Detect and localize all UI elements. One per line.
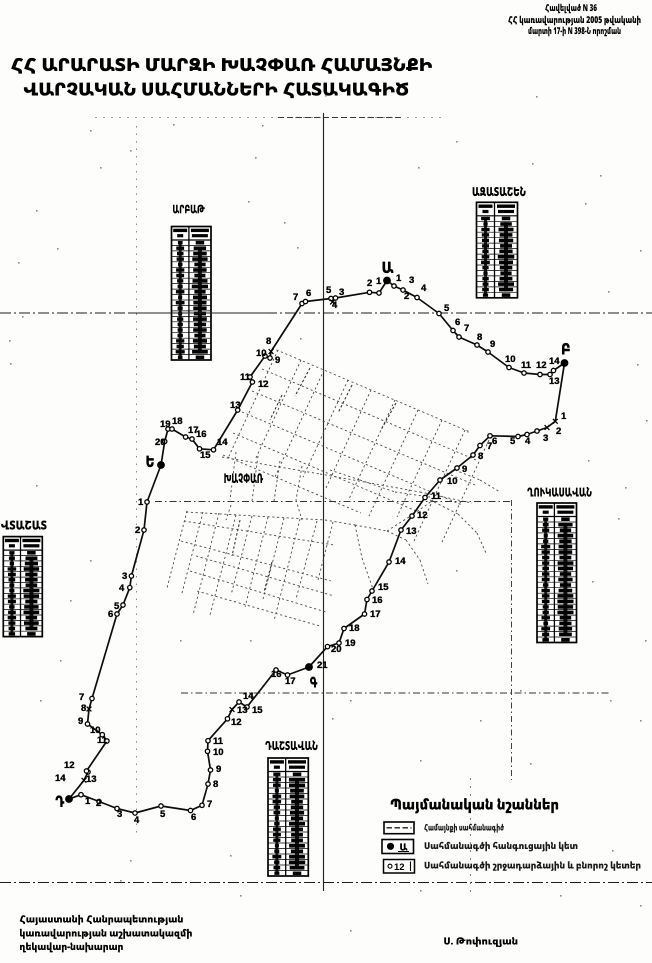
svg-text:7: 7 [487, 441, 492, 452]
svg-text:7: 7 [207, 799, 212, 810]
svg-text:4: 4 [119, 583, 125, 594]
svg-text:19: 19 [345, 638, 356, 649]
svg-text:13: 13 [549, 376, 560, 387]
svg-text:13: 13 [237, 705, 248, 716]
svg-text:11: 11 [240, 372, 251, 383]
svg-text:9: 9 [490, 339, 495, 350]
svg-text:10: 10 [90, 725, 101, 736]
svg-text:20: 20 [155, 437, 166, 448]
svg-text:14: 14 [549, 356, 560, 367]
svg-text:4: 4 [525, 436, 531, 447]
svg-text:11: 11 [431, 491, 442, 502]
svg-text:13: 13 [230, 400, 241, 411]
svg-text:10: 10 [256, 348, 267, 359]
svg-text:4: 4 [134, 815, 140, 826]
svg-text:13: 13 [86, 774, 97, 785]
svg-text:12: 12 [258, 379, 269, 390]
svg-text:4: 4 [332, 300, 338, 311]
svg-text:15: 15 [378, 582, 389, 593]
svg-text:4: 4 [421, 283, 427, 294]
svg-text:1: 1 [85, 796, 91, 807]
svg-text:11: 11 [521, 360, 532, 371]
svg-text:2: 2 [556, 426, 561, 437]
svg-text:20: 20 [331, 644, 342, 655]
svg-text:12: 12 [417, 510, 428, 521]
svg-text:6: 6 [191, 812, 196, 823]
svg-text:3: 3 [543, 433, 548, 444]
svg-text:15: 15 [200, 450, 211, 461]
svg-text:16: 16 [271, 669, 282, 680]
svg-text:2: 2 [96, 798, 101, 809]
svg-text:1: 1 [376, 276, 382, 287]
svg-text:17: 17 [285, 676, 296, 687]
svg-text:7: 7 [293, 292, 298, 303]
svg-text:14: 14 [243, 691, 254, 702]
svg-text:11: 11 [213, 736, 224, 747]
svg-text:9: 9 [462, 464, 467, 475]
svg-text:10: 10 [505, 354, 516, 365]
svg-text:6: 6 [306, 288, 311, 299]
svg-text:12: 12 [64, 760, 75, 771]
svg-text:10: 10 [213, 747, 224, 758]
svg-text:17: 17 [370, 609, 381, 620]
svg-text:14: 14 [395, 556, 406, 567]
svg-text:16: 16 [196, 429, 207, 440]
svg-text:3: 3 [117, 809, 122, 820]
svg-text:14: 14 [217, 437, 228, 448]
svg-text:5: 5 [326, 285, 332, 296]
svg-text:5: 5 [444, 303, 450, 314]
svg-text:2: 2 [367, 278, 372, 289]
svg-text:8: 8 [477, 332, 482, 343]
svg-text:19: 19 [160, 419, 171, 430]
svg-text:9: 9 [216, 764, 221, 775]
svg-text:11: 11 [97, 735, 108, 746]
svg-text:18: 18 [172, 416, 183, 427]
svg-text:7: 7 [79, 692, 84, 703]
svg-text:12: 12 [394, 862, 405, 873]
svg-text:12: 12 [536, 360, 547, 371]
svg-text:1: 1 [138, 497, 144, 508]
svg-text:12: 12 [231, 717, 242, 728]
svg-text:15: 15 [252, 705, 263, 716]
svg-text:10: 10 [447, 476, 458, 487]
svg-text:6: 6 [492, 436, 497, 447]
svg-text:3: 3 [409, 275, 414, 286]
svg-text:6: 6 [455, 317, 460, 328]
svg-text:3: 3 [339, 287, 344, 298]
svg-text:2: 2 [404, 291, 409, 302]
svg-text:5: 5 [510, 436, 516, 447]
svg-text:1: 1 [561, 411, 567, 422]
svg-text:16: 16 [372, 595, 383, 606]
svg-text:5: 5 [160, 809, 166, 820]
svg-text:8: 8 [213, 779, 218, 790]
svg-text:8: 8 [478, 451, 483, 462]
svg-text:7: 7 [464, 323, 469, 334]
svg-text:9: 9 [78, 716, 83, 727]
svg-text:18: 18 [349, 623, 360, 634]
svg-text:8: 8 [266, 336, 271, 347]
svg-text:13: 13 [406, 526, 417, 537]
svg-text:2: 2 [135, 525, 140, 536]
svg-text:1: 1 [396, 273, 402, 284]
svg-text:3: 3 [122, 571, 127, 582]
svg-text:6: 6 [108, 609, 113, 620]
svg-text:8: 8 [81, 703, 86, 714]
svg-text:5: 5 [114, 601, 120, 612]
svg-text:21: 21 [317, 660, 328, 671]
svg-text:14: 14 [55, 773, 66, 784]
svg-text:9: 9 [275, 355, 280, 366]
